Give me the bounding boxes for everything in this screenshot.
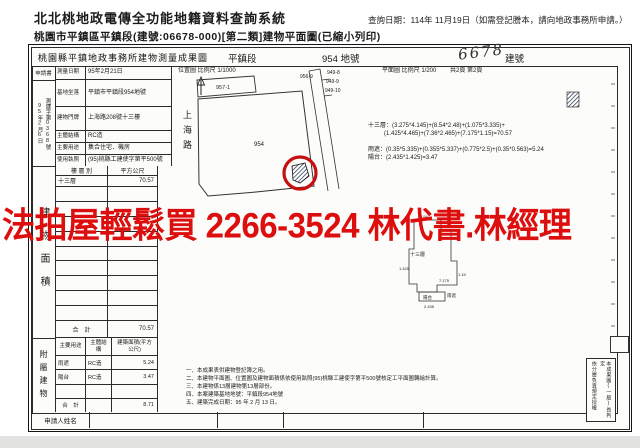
total-value: 70.57 — [108, 321, 157, 337]
info-value: RC造 — [86, 131, 171, 142]
table-row: 雨遮 RC造 5.24 — [56, 356, 157, 370]
table-row: 主體結構 RC造 — [56, 131, 171, 143]
info-value: 平鎮市平鎮段954地號 — [86, 80, 171, 106]
info-value: 集合住宅．機房 — [86, 143, 171, 154]
table-row: 測量日期 95年2月21日 — [56, 66, 171, 80]
margin-case-number: 測建字第0368號 — [45, 98, 51, 150]
table-row — [56, 385, 157, 399]
floor-cell: 十三層 — [56, 176, 108, 186]
col-use-header: 主要用途 — [56, 338, 86, 355]
table-row: 使用執照 (95)桃縣工建使字第平500號 — [56, 155, 171, 166]
total-label: 合 計 — [56, 321, 108, 337]
fold-mark-box — [610, 336, 629, 353]
area-cell: 5.24 — [112, 356, 157, 369]
area-cell: 3.47 — [112, 370, 157, 383]
query-date: 查詢日期：114年 11月19日（如需登記謄本，請向地政事務所申請。） — [368, 14, 627, 26]
foreclosure-ad-watermark: 法拍屋輕鬆買 2266-3524 林代書.林經理 — [2, 197, 640, 248]
parcel-number: 954 地號 — [322, 51, 360, 65]
info-label: 基地坐落 — [56, 80, 86, 106]
table-row: 主要用途 集合住宅．機房 — [56, 143, 171, 155]
authorization-stamp: 本成果圖(一般)長判定 依分層負責規定授權 — [586, 358, 616, 422]
building-number-label: 建號 — [505, 51, 524, 65]
system-title: 北北桃地政電傳全功能地籍資料查詢系統 — [34, 8, 286, 27]
accessory-table: 主要用途 主體結構 建築面積(平方公尺) 雨遮 RC造 5.24 陽台 RC造 … — [56, 338, 158, 412]
margin-accessory-label: 附屬建物 — [32, 338, 56, 412]
applicant-empty-cell — [90, 412, 218, 428]
total-row: 合 計 8.71 — [56, 399, 157, 412]
table-header-row: 樓 層 別 平方公尺 — [56, 166, 157, 176]
structure-cell: RC造 — [86, 370, 112, 383]
area-cell: 70.57 — [108, 176, 157, 186]
table-header-row: 主要用途 主體結構 建築面積(平方公尺) — [56, 338, 157, 356]
info-label: 測量日期 — [56, 66, 86, 79]
stamp-text-left: 依分層負責規定授權 — [591, 361, 597, 419]
screen: 北北桃地政電傳全功能地籍資料查詢系統 查詢日期：114年 11月19日（如需登記… — [0, 0, 640, 448]
document-title: 桃園市平鎮區平鎮段(建號:06678-000)[第二類]建物平面圖(已縮小列印) — [34, 29, 381, 44]
table-row: 基地坐落 平鎮市平鎮段954地號 — [56, 80, 171, 107]
info-label: 建物門牌 — [56, 107, 86, 130]
info-label: 主要用途 — [56, 143, 86, 154]
info-label: 使用執照 — [56, 155, 86, 166]
info-value: (95)桃縣工建使字第平500號 — [86, 155, 171, 166]
info-value: 上海路208號十三樓 — [86, 107, 171, 130]
table-row — [56, 306, 157, 321]
applicant-row: 申請人姓名 — [32, 412, 616, 428]
accessory-vertical-text: 附屬建物 — [38, 350, 49, 402]
table-row — [56, 247, 157, 262]
applicant-label: 申請人姓名 — [32, 412, 90, 428]
col-sqm-header: 平方公尺 — [108, 166, 157, 175]
info-label: 主體結構 — [56, 131, 86, 142]
margin-case-date: 95年2月6日 — [36, 103, 42, 144]
table-row — [56, 276, 157, 291]
stamp-text-right: 本成果圖(一般)長判定 — [599, 361, 612, 419]
building-info-table: 測量日期 95年2月21日 基地坐落 平鎮市平鎮段954地號 建物門牌 上海路2… — [56, 66, 172, 166]
applicant-empty-cell — [218, 412, 284, 428]
sheet-title: 桃園縣平鎮地政事務所建物測量成果圖 — [38, 51, 208, 64]
table-row: 十三層 70.57 — [56, 176, 157, 187]
margin-application-label: 申請書 — [32, 66, 56, 80]
margin-building-area-label: 建物面積 — [32, 166, 56, 338]
info-value: 95年2月21日 — [86, 66, 171, 79]
total-value: 8.71 — [112, 399, 157, 412]
table-row: 陽台 RC造 3.47 — [56, 370, 157, 384]
col-floor-header: 樓 層 別 — [56, 166, 108, 175]
structure-cell: RC造 — [86, 356, 112, 369]
section-label: 平鎮段 — [228, 51, 257, 65]
table-row — [56, 261, 157, 276]
floor-area-table: 樓 層 別 平方公尺 十三層 70.57 合 計 70.57 — [56, 166, 158, 338]
total-label: 合 計 — [56, 399, 86, 412]
margin-case-cell: 測建字第0368號 95年2月6日 — [32, 80, 56, 166]
col-area-header: 建築面積(平方公尺) — [112, 338, 157, 355]
bottom-bar — [0, 436, 640, 448]
table-row: 建物門牌 上海路208號十三樓 — [56, 107, 171, 131]
applicant-empty-cell — [284, 412, 424, 428]
total-row: 合 計 70.57 — [56, 321, 157, 337]
col-structure-header: 主體結構 — [86, 338, 112, 355]
use-cell: 雨遮 — [56, 356, 86, 369]
table-row — [56, 291, 157, 306]
road-label: 上海路 — [181, 110, 194, 155]
use-cell: 陽台 — [56, 370, 86, 383]
